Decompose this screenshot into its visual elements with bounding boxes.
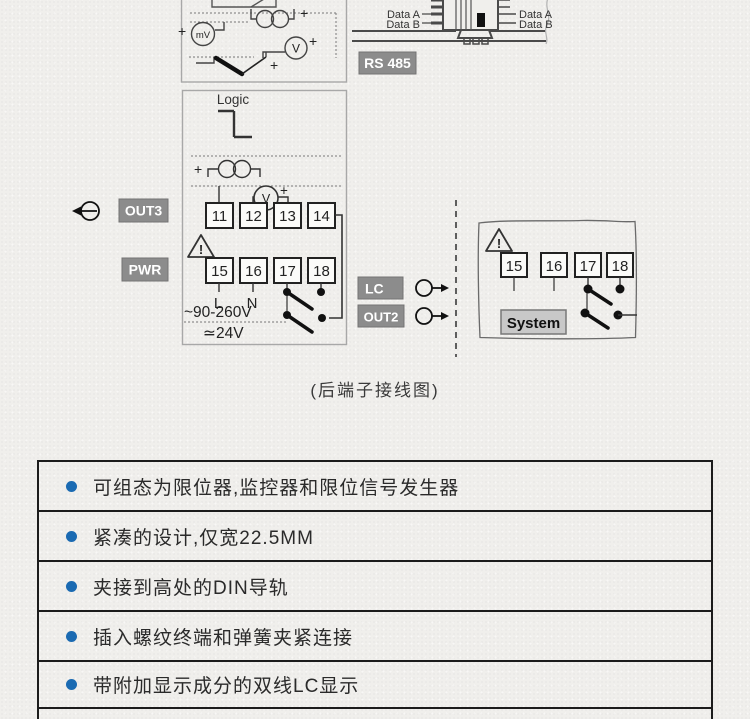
logic-title: Logic [217,92,250,107]
terminal-13: 13 [279,208,296,225]
feature-row: 夹接到高处的DIN导轨 [39,562,711,612]
left-pins [431,0,443,23]
pwr-group: PWR [122,258,168,281]
feature-row-partial [39,709,711,718]
rs485-badge: RS 485 [359,52,416,74]
switch-blade-icon [287,292,312,309]
switch-blade-icon [588,289,611,304]
mv-label: mV [196,30,211,41]
bullet-icon [66,631,77,642]
product-diagram-page: { "colors": { "page_bg": "#f0efec", "bad… [0,0,750,719]
terminal-12: 12 [245,208,262,225]
pwr-badge-label: PWR [129,262,162,278]
feature-row: 带附加显示成分的双线LC显示 [39,662,711,709]
logic-pulse-icon [218,111,252,137]
ct-plus-sign: + [300,5,308,21]
feature-text: 夹接到高处的DIN导轨 [93,573,289,600]
terminal-16: 16 [245,263,262,280]
sensor-input-diagram: + + mV V + + [178,0,347,82]
feature-row: 可组态为限位器,监控器和限位信号发生器 [39,462,711,512]
system-relay-diagram: ! 15 16 17 18 System [478,220,637,338]
dc-range-label: ≃24V [203,325,244,342]
connector-foot [458,30,492,38]
feature-row: 紧凑的设计,仅宽22.5MM [39,512,711,562]
sensor-box-border [182,0,347,82]
sys-terminal-18: 18 [612,258,629,275]
connector-latch [477,13,485,27]
arrow-left-head [72,207,81,216]
logic-ct-plus: + [194,161,202,177]
logic-terminal-diagram: Logic + V + 11 12 13 14 ! [183,91,347,345]
warning-mark: ! [199,242,203,257]
feature-text: 带附加显示成分的双线LC显示 [93,671,359,698]
lc-group: LC [358,277,449,299]
data-b-right-label: Data B [519,19,553,31]
out3-group: OUT3 [72,199,168,222]
feature-text: 紧凑的设计,仅宽22.5MM [93,523,314,550]
arrow-right-head [441,284,449,292]
data-b-left-label: Data B [386,19,420,31]
system-badge-label: System [507,315,560,332]
feature-row: 插入螺纹终端和弹簧夹紧连接 [39,612,711,662]
bullet-icon [66,679,77,690]
sys-terminal-17: 17 [580,258,597,275]
out3-badge-label: OUT3 [125,203,163,219]
thermocouple-icon [216,58,242,74]
terminal-15: 15 [211,263,228,280]
out2-output-icon [416,308,432,324]
thermocouple-lead [196,57,214,63]
right-pins [498,0,516,23]
lc-output-icon [416,280,432,296]
terminal-17: 17 [279,263,296,280]
ac-range-label: ~90-260V [184,304,252,321]
feature-table: 可组态为限位器,监控器和限位信号发生器 紧凑的设计,仅宽22.5MM 夹接到高处… [37,460,713,719]
terminal-11: 11 [212,208,228,225]
sys-terminal-15: 15 [506,258,523,275]
feature-text: 插入螺纹终端和弹簧夹紧连接 [93,623,353,650]
out2-group: OUT2 [358,305,449,327]
bullet-icon [66,581,77,592]
terminal-14: 14 [313,208,330,225]
sys-terminal-16: 16 [546,258,563,275]
tc-plus-sign: + [270,57,278,73]
bullet-icon [66,531,77,542]
terminal-18: 18 [313,263,330,280]
rs485-connector-diagram: Data A Data B Data A Data B [352,0,553,44]
v-label: V [292,42,300,56]
ct-lead-left [251,9,256,19]
bullet-icon [66,481,77,492]
diagram-caption: (后端子接线图) [0,376,750,401]
rs485-badge-label: RS 485 [364,55,411,71]
mv-plus-sign: + [178,23,186,39]
logic-v-plus: + [280,183,288,198]
v-plus-sign: + [309,33,317,49]
lc-badge-label: LC [365,281,384,297]
warning-mark: ! [497,236,501,251]
out2-badge-label: OUT2 [364,310,399,325]
feature-text: 可组态为限位器,监控器和限位信号发生器 [93,473,459,500]
